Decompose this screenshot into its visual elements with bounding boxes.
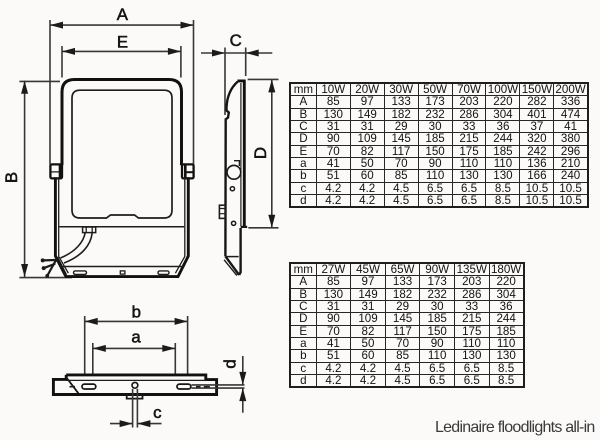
svg-text:c: c (153, 403, 161, 422)
svg-text:D: D (251, 147, 270, 159)
svg-text:B: B (2, 172, 21, 183)
svg-text:E: E (117, 33, 128, 52)
svg-text:C: C (230, 31, 242, 50)
svg-text:d: d (221, 359, 240, 368)
svg-text:A: A (117, 5, 129, 24)
svg-text:b: b (132, 302, 141, 321)
svg-text:a: a (131, 328, 141, 347)
